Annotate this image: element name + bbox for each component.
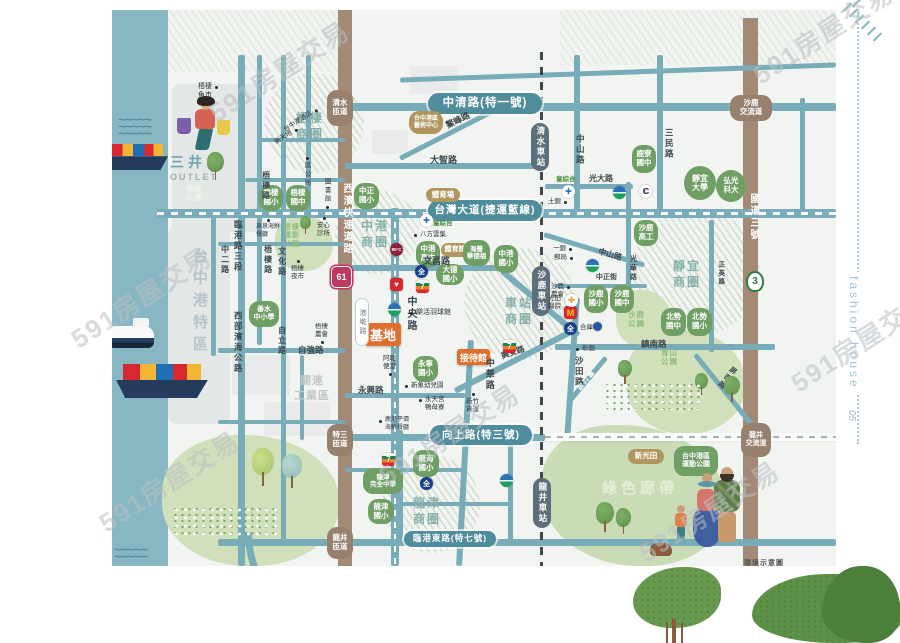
road-zhong2 [211,216,216,356]
road-label-zhong2: 中二路 [220,245,230,275]
seven-eleven-icon: 7 [503,340,516,353]
harbor-water [112,10,168,566]
stadium: 體育場 [426,188,460,202]
industrial-zone-label: 關連 工業區 [294,374,330,404]
hospital-cross-icon: ✚ [420,214,433,227]
interchange-longjing: 龍井 交流道 [741,423,771,457]
road-label-gangqian: 港墘路 [355,298,369,346]
poi-district-office: 區公所 [302,162,310,188]
station-qingshui: 清水車站 [531,123,549,171]
district-longjin: 龍津 商圈 [413,495,441,527]
hospital-cross-icon: ✚ [562,185,575,198]
road-label-sanmin: 三民路 [664,128,674,160]
road-label-zhengying: 正英路 [716,261,724,287]
poi-wuqi-farmers-assoc: 梧棲 農會 [315,323,328,339]
seven-eleven-icon: 7 [382,453,395,466]
road-label-zhongzheng-st: 中正街 [596,274,617,282]
road-label-ziqiang: 自強路 [298,345,324,355]
xinguangtian: 新光田 [628,449,664,464]
familymart-icon [613,186,626,199]
poi-bafang-dumplings: 八方雲集 [420,231,446,239]
road-label-zhongshan-2: 中山路 [597,247,623,263]
school-zhonggang-es: 中港 國小 [494,245,518,273]
road-pill-zhongqing: 中清路(特一號) [428,93,542,114]
poi-library: 圖書館 [322,178,330,204]
school-wuqi-jhs: 梧棲 國中 [286,185,310,211]
wuqi-sport-park-label: 梧棲 運動 公園 [284,224,300,249]
school-yongning-es: 永寧 國小 [413,356,438,382]
road-sanmin [657,55,663,213]
poi-tungs-hospital-w: 童綜合 [433,220,453,228]
school-longhai-es: 龍海 國小 [413,450,439,477]
poi-changhwa-bank: 彰銀 [582,345,595,353]
carrefour-icon: C [639,185,652,198]
road-label-guangda: 光大路 [589,174,613,184]
poi-hsinchu-logistics: 新竹 貨運 [466,398,479,414]
harbor-park-label: 港區 公園 [186,184,203,202]
poi-bento-shop: 阿聰 便當 [383,355,396,371]
bank-logo-icon [593,322,602,331]
poi-kindergarten: 新象幼兒園 [411,382,444,390]
tree [300,216,311,234]
poi-seafood-restaurant: 泉泉海鮮 餐廳 [256,224,280,239]
map-caption: 環境示意圖 [744,558,784,568]
road-label-wuqi-rd-2: 梧棲路 [263,245,273,275]
shalu-park-label: 沙鹿 公園 [628,310,645,328]
road-top [400,62,836,82]
port-zone-label: 台中港特區 [190,248,208,358]
side-text: fashion house [847,272,861,394]
poi-kuangtien-hospital: 光田 醫院 [548,295,561,311]
pxmart-icon: 全 [564,322,577,335]
road-label-zhonghua: 中華路 [484,358,495,391]
district-jingyi: 靜宜 商圈 [673,258,701,290]
road-label-wenchang: 文昌路 [423,256,450,267]
ramp-te3: 特三 匝道 [327,424,353,456]
family-illustration [645,463,750,566]
bottom-tree-illustration [633,567,721,643]
cargo-ship [116,358,208,398]
familymart-icon [388,303,401,316]
pxmart-icon: 全 [420,477,433,490]
flower-cluster [604,382,704,410]
ramp-longjing: 龍井 匝道 [327,527,353,559]
poi-tungs-hospital-n: 童綜合 [556,176,576,184]
road-label-freeway3: 國道三號 [744,193,759,241]
school-beishi-es: 北勢 國小 [687,308,712,336]
road-ne-minor [800,98,805,214]
tree [282,454,302,488]
road-industrial-h [218,420,345,424]
poi-lugang-seafood: 鹿港平價 海鮮餐廳 [385,417,409,432]
providence-university: 靜宜 大學 [684,166,716,200]
road-label-lingang-3: 臨港路三段 [233,220,243,273]
school-shanshui: 善水 中小學 [249,301,279,327]
school-dade-es: 大德 國小 [436,264,464,285]
road-label-yongxing: 永興路 [358,385,384,395]
road-label-wenhua: 文化路 [277,247,287,277]
site-marker: 基地 [365,323,401,346]
road-label-wuqi-rd: 梧棲路 [261,171,271,201]
location-map: 中清路(特一號)台灣大道(捷運藍線)向上路(特三號)臨港東路(特七號)清水 匝道… [112,10,836,566]
school-shalu-es: 沙鹿 國小 [584,285,608,313]
mcdonalds-icon: M [564,306,577,319]
kuangtien-cross-icon: ✚ [565,294,578,307]
school-shalu-jhs: 沙鹿 國中 [610,285,634,313]
school-longjin-complete: 龍津 完全中學 [363,468,403,494]
xiangshang-centerline [545,436,836,438]
tree [616,508,631,534]
poi-taiwan-coop-bank: 合庫 [580,324,593,332]
art-center: 台中港區 藝術中心 [409,111,443,134]
station-longjing: 龍井車站 [533,478,551,528]
heart-store-icon: ♥ [390,278,403,291]
waves: ~~~~~ ~~~~~ ~~~~~ [118,116,164,142]
poi-land-bank: 土銀 [548,198,561,206]
poi-post-office: 郵局 [554,254,567,262]
road-pill-lingang-e: 臨港東路(特七號) [404,531,496,547]
poi-yongtian-temple: 永天宮 鴨母寮 [425,396,445,412]
road-label-xibin: 西濱快速道路 [338,183,352,255]
poi-wuqi-night-market: 梧棲 夜市 [291,265,304,281]
waves: ~~~~~ ~~~~~ [114,546,162,566]
poi-badminton-hall: 樂活羽球館 [416,309,451,318]
hungkuang-university: 弘光 科大 [716,170,746,202]
corner-dash-decoration [840,2,890,47]
flower-cluster [172,506,277,536]
school-haisheng-waldorf: 海聲 華德福 [463,240,490,266]
road-label-dazhi: 大智路 [430,155,457,166]
tree [252,448,274,486]
seven-eleven-icon: 7 [416,280,429,293]
ferry-ship [112,326,154,348]
road-south-1 [345,468,465,472]
poi-anxin-clinic: 安心 診所 [317,222,330,238]
school-zhongzheng-es: 中正 國小 [354,183,379,209]
building-block [372,130,408,154]
ramp-qingshui: 清水 匝道 [327,90,353,126]
hatch-area-ne [560,10,836,65]
road-pill-xiangshang: 向上路(特三號) [430,425,532,445]
road-label-guanghua: 光華路 [628,255,636,282]
tree [618,360,632,384]
page-number: 05 [846,410,857,421]
familymart-icon [500,474,513,487]
shopper-illustration [175,96,233,160]
school-longjin-es: 龍津 國小 [368,499,394,524]
familymart-icon [586,259,599,272]
district-station: 車站 商圈 [505,295,533,327]
poi-first-bank: 一銀 [553,245,566,253]
district-zhonggang: 中港 商圈 [361,218,389,250]
school-luliao-jhs: 鹿寮 國中 [632,145,656,173]
qingshan-park-label: 青山 公園 [661,348,678,366]
brochure-page: 中清路(特一號)台灣大道(捷運藍線)向上路(特三號)臨港東路(特七號)清水 匝道… [0,0,900,643]
road-label-zili: 自立路 [277,326,287,356]
road-label-zhongshan: 中山路 [575,134,585,166]
interchange-shalu: 沙鹿 交流道 [730,95,772,121]
freeway-3-shield: 3 [746,271,764,292]
tree [724,376,740,402]
highway-61-shield: 61 [331,266,352,288]
cargo-ship [112,140,168,170]
85c-cafe-icon: 85°C [390,243,403,256]
school-beishi-jhs: 北勢 國中 [661,308,686,336]
school-shalu-vhs: 沙鹿 高工 [634,220,658,246]
road-label-west-coast: 西部濱海公路 [233,311,243,374]
pxmart-icon: 全 [415,265,428,278]
tree [596,502,614,532]
road-pill-taiwan-blvd: 台灣大道(捷運藍線) [428,200,542,221]
bottom-bush-illustration [822,566,900,643]
